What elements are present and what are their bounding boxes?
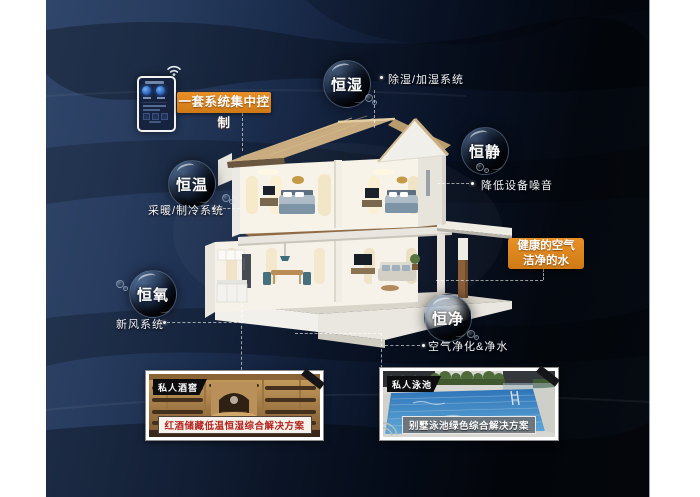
bubble-label: 恒净 xyxy=(432,308,464,329)
house-upper-floor xyxy=(232,155,446,237)
bubble-label: 恒湿 xyxy=(331,74,363,95)
phone-control-button xyxy=(156,86,165,95)
connector-oxygen-v xyxy=(242,304,243,322)
phone-tile xyxy=(143,113,150,120)
connector-highlight-h xyxy=(436,280,543,281)
pool-photo: 私人泳池 别墅泳池绿色综合解决方案 xyxy=(380,368,558,440)
connector-pool-h xyxy=(295,333,381,334)
bubble-label: 恒静 xyxy=(469,141,501,162)
bubble-constant-oxygen: 恒氧 xyxy=(129,270,177,318)
phone-home-bar xyxy=(149,121,161,123)
wifi-icon xyxy=(166,62,182,77)
label-oxygen-system: 新风系统 xyxy=(116,316,164,332)
smart-panel-phone xyxy=(137,76,176,132)
mini-bubble xyxy=(484,168,489,173)
connector-dot xyxy=(471,182,474,185)
bubble-label: 恒温 xyxy=(176,174,208,195)
wine-cellar-tag: 私人酒窖 xyxy=(153,379,207,395)
label-quiet-system: 降低设备噪音 xyxy=(481,177,553,193)
phone-label-bar xyxy=(143,97,151,99)
connector-dot xyxy=(380,76,383,79)
wine-cellar-photo: 私人酒窖 红酒储藏低温恒湿综合解决方案 xyxy=(146,371,323,440)
highlight-line-1: 健康的空气 xyxy=(508,239,584,254)
connector-dot xyxy=(422,344,425,347)
bubble-constant-humidity: 恒湿 xyxy=(323,60,371,108)
mini-bubble xyxy=(123,286,128,291)
connector-humidity xyxy=(374,90,375,128)
phone-tile xyxy=(161,113,168,120)
connector-oxygen-h xyxy=(167,322,242,323)
mini-bubble xyxy=(229,199,234,204)
bubble-constant-temperature: 恒温 xyxy=(168,160,216,208)
phone-row-bar xyxy=(143,105,166,107)
bubble-label: 恒氧 xyxy=(137,284,169,305)
infographic-poster: 恒湿 恒静 恒温 恒氧 恒净 除湿/加湿系统 降低设备噪音 采暖/制冷系统 新风… xyxy=(0,0,700,497)
connector-highlight-v xyxy=(543,269,544,280)
poster-canvas: 恒湿 恒静 恒温 恒氧 恒净 除湿/加湿系统 降低设备噪音 采暖/制冷系统 新风… xyxy=(46,0,650,497)
mini-bubble xyxy=(372,100,377,105)
label-temperature-system: 采暖/制冷系统 xyxy=(148,202,224,218)
phone-row-bar xyxy=(143,109,160,111)
pool-caption: 别墅泳池绿色综合解决方案 xyxy=(402,416,536,434)
central-control-banner: 一套系统集中控制 xyxy=(177,92,271,113)
wine-cellar-caption: 红酒储藏低温恒湿综合解决方案 xyxy=(157,416,311,434)
phone-control-button xyxy=(142,86,151,95)
bubble-constant-clean: 恒净 xyxy=(424,294,472,342)
phone-tile xyxy=(152,113,159,120)
healthy-air-water-box: 健康的空气 洁净的水 xyxy=(508,238,584,269)
pool-tag: 私人泳池 xyxy=(387,376,441,392)
connector-control-to-roof xyxy=(242,113,243,151)
phone-divider xyxy=(142,102,167,103)
connector-pool-v xyxy=(381,333,382,368)
connector-quiet xyxy=(437,183,469,184)
highlight-line-2: 洁净的水 xyxy=(508,254,584,269)
phone-label-bar xyxy=(157,97,165,99)
connector-wine-photo xyxy=(241,300,242,370)
mini-bubble xyxy=(476,163,484,171)
label-humidity-system: 除湿/加湿系统 xyxy=(388,71,464,87)
phone-header-bar xyxy=(145,81,164,84)
label-clean-system: 空气净化&净水 xyxy=(428,338,508,354)
connector-clean-h xyxy=(385,345,420,346)
